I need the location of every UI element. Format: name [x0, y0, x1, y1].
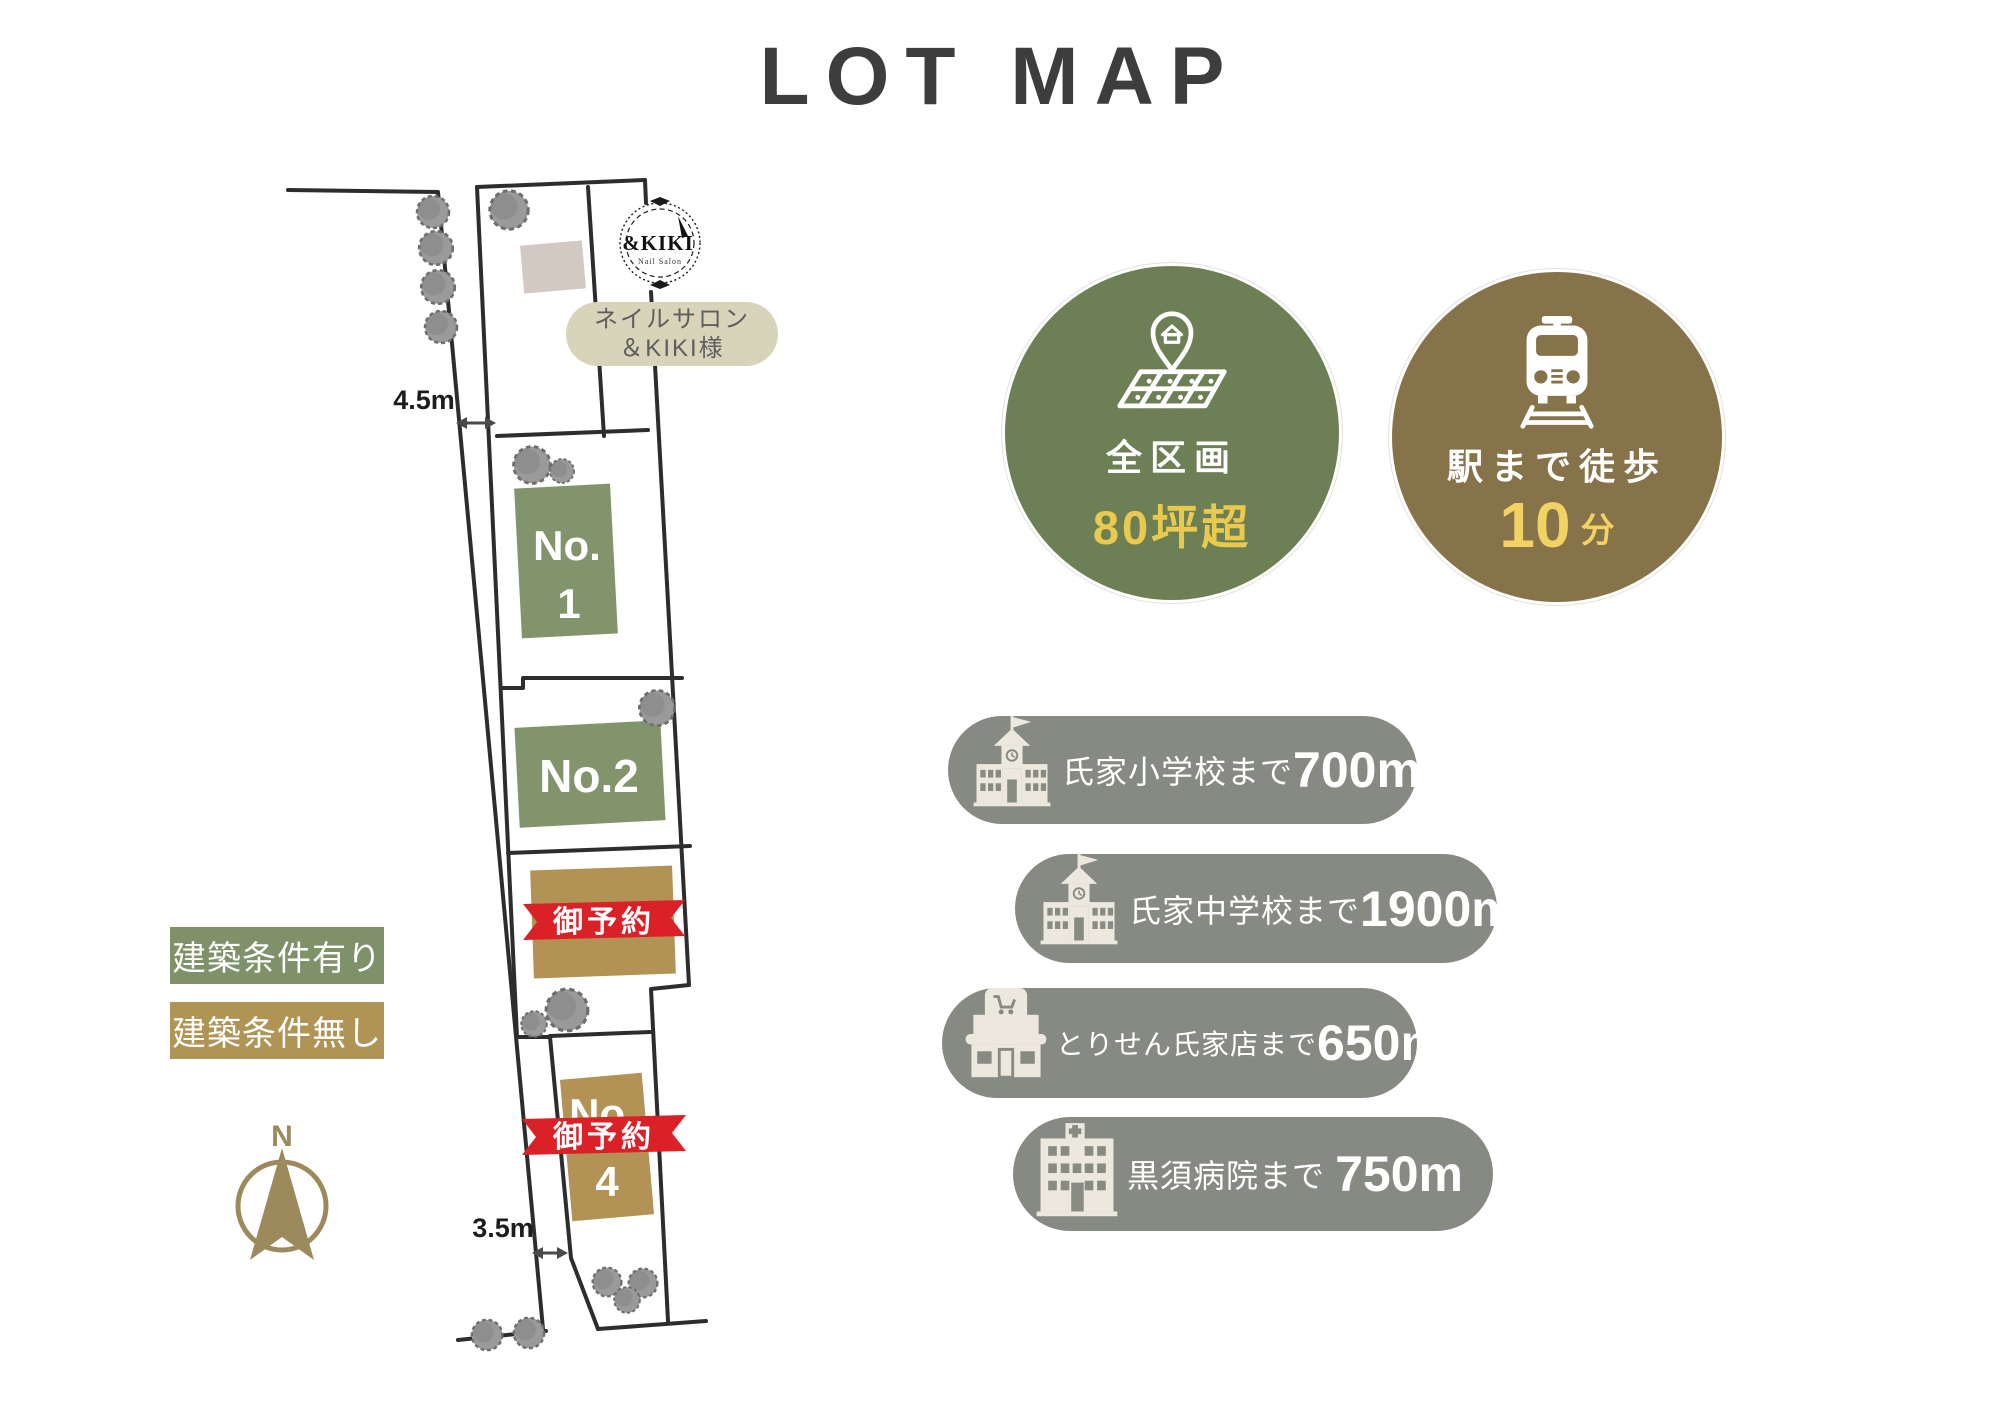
- badge-area-value: 80坪超: [1093, 489, 1251, 558]
- facility-name: 氏家中学校まで: [1129, 886, 1360, 932]
- reserved-ribbon-lot4: 御予約: [522, 1115, 686, 1155]
- salon-label: ネイルサロン ＆KIKI様: [566, 302, 778, 366]
- junior-high-school-icon: [1031, 838, 1127, 970]
- dimension-road-top: 4.5m: [393, 385, 496, 429]
- salon-building: [520, 240, 586, 293]
- elementary-school-icon: [964, 700, 1060, 832]
- legend-label: 建築条件有り: [172, 931, 382, 980]
- legend-label: 建築条件無し: [172, 1006, 382, 1055]
- kiki-logo-tagline: Nail Salon: [638, 257, 682, 266]
- lot-2-label: No.2: [539, 750, 639, 802]
- facility-distance: 1900m: [1360, 880, 1516, 938]
- reserved-ribbon-text: 御予約: [552, 1121, 655, 1154]
- reserved-ribbon-lot3: 御予約: [523, 900, 685, 940]
- legend-without-building-conditions: 建築条件無し: [170, 1002, 384, 1059]
- facility-name: 氏家小学校まで: [1062, 747, 1293, 793]
- lot-1-label-no: No.: [533, 522, 601, 569]
- badge-station-unit: 分: [1581, 503, 1615, 552]
- train-icon: [1507, 316, 1607, 432]
- facility-name: 黒須病院まで: [1127, 1151, 1325, 1197]
- facility-row-junior-high-school: 氏家中学校まで 1900m: [1015, 854, 1497, 963]
- legend-with-building-conditions: 建築条件有り: [170, 927, 384, 984]
- facility-distance: 650m: [1317, 1014, 1445, 1072]
- reserved-ribbon-text: 御予約: [552, 906, 655, 939]
- badge-station-walk: 駅まで徒歩 10 分: [1392, 272, 1722, 602]
- page-title: LOT MAP: [0, 30, 2000, 124]
- compass-n-label: N: [271, 1120, 293, 1153]
- kiki-logo: &KIKI Nail Salon: [620, 197, 700, 289]
- facility-distance: 750m: [1335, 1145, 1463, 1203]
- salon-label-line2: ＆KIKI様: [619, 334, 724, 363]
- facility-row-elementary-school: 氏家小学校まで 700m: [948, 716, 1417, 824]
- hospital-icon: [1029, 1121, 1125, 1227]
- compass-north-icon: N: [238, 1120, 326, 1260]
- facility-row-supermarket: とりせん氏家店まで 650m: [942, 988, 1417, 1098]
- lot-map-flyer: LOT MAP: [0, 0, 2000, 1414]
- salon-label-line1: ネイルサロン: [594, 305, 750, 334]
- map-pin-house-icon: [1109, 309, 1235, 423]
- facility-name: とりせん氏家店まで: [1056, 1023, 1317, 1063]
- badge-station-value: 10 分: [1499, 492, 1614, 558]
- supermarket-icon: [958, 968, 1054, 1100]
- badge-area-caption: 全区画: [1106, 429, 1238, 481]
- badge-lot-area: 全区画 80坪超: [1005, 266, 1339, 600]
- badge-station-caption: 駅まで徒歩: [1447, 438, 1667, 490]
- badge-station-minutes: 10: [1499, 492, 1570, 558]
- dimension-bottom-label: 3.5m: [472, 1213, 534, 1243]
- lot-4-label-num: 4: [595, 1158, 619, 1205]
- dimension-road-bottom: 3.5m: [472, 1213, 568, 1259]
- facility-distance: 700m: [1293, 741, 1421, 799]
- lot-parcels: [514, 240, 676, 1221]
- dimension-top-label: 4.5m: [393, 385, 455, 415]
- facility-row-hospital: 黒須病院まで 750m: [1013, 1117, 1493, 1231]
- lot-1-label-num: 1: [557, 580, 580, 627]
